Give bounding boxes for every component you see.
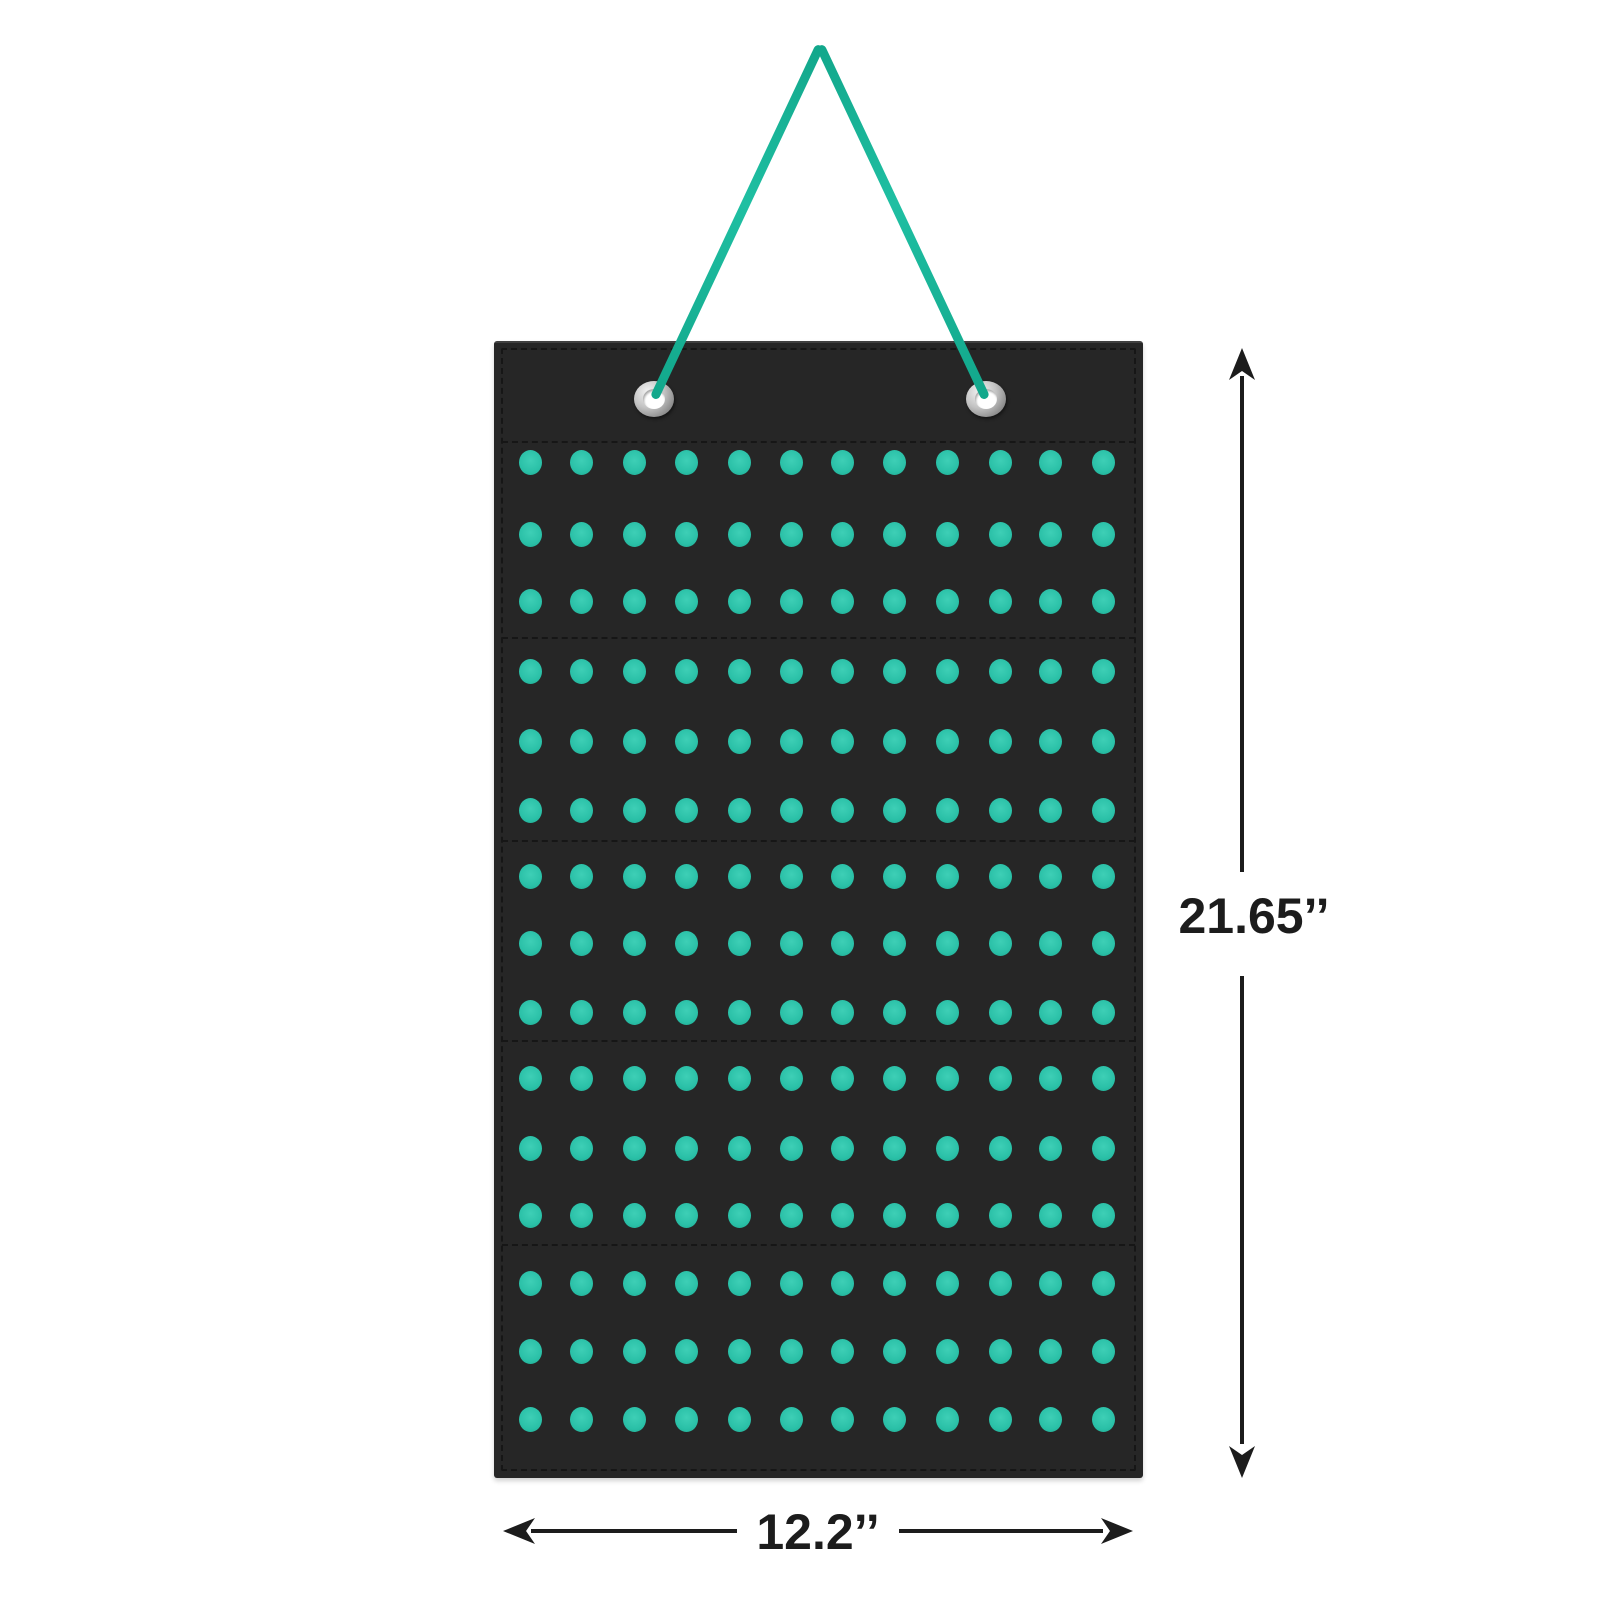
height-arrow-down-icon (1229, 1446, 1255, 1478)
pocket-dot (675, 1136, 698, 1161)
pocket-dot (1039, 1066, 1062, 1091)
pocket-dot (675, 1066, 698, 1091)
pocket-dot (1092, 589, 1115, 614)
pocket-dot (989, 522, 1012, 547)
pocket-dot (989, 1271, 1012, 1296)
pocket-dot (883, 1066, 906, 1091)
pocket-dot (883, 931, 906, 956)
pocket-dot (883, 659, 906, 684)
pocket-dot (623, 1136, 646, 1161)
product-dimension-diagram: 21.65’’ 12.2’’ (0, 0, 1600, 1600)
pocket-dot (675, 1407, 698, 1432)
pocket-dot (1092, 1271, 1115, 1296)
pocket-dot (570, 798, 593, 823)
pocket-dot (1039, 729, 1062, 754)
pocket-dot (831, 798, 854, 823)
pocket-dot (519, 589, 542, 614)
pocket-dot (780, 931, 803, 956)
pocket-dot (883, 1136, 906, 1161)
pocket-dot (936, 1271, 959, 1296)
pocket-dot (989, 450, 1012, 475)
pocket-dot (883, 798, 906, 823)
pocket-dot (570, 1407, 593, 1432)
pocket-dot (1092, 729, 1115, 754)
height-dimension-line-bottom (1240, 976, 1244, 1444)
pocket-dot (989, 1339, 1012, 1364)
pocket-dot (570, 729, 593, 754)
pocket-dot (989, 1000, 1012, 1025)
pocket-dot (780, 1000, 803, 1025)
pocket-dot (936, 864, 959, 889)
pocket-dot (1039, 931, 1062, 956)
pocket-dot (675, 450, 698, 475)
pocket-dot (519, 1407, 542, 1432)
width-dimension-line-right (899, 1529, 1103, 1533)
width-label: 12.2’’ (756, 1503, 879, 1561)
pocket-dot (728, 1066, 751, 1091)
pocket-dot (780, 798, 803, 823)
pocket-dot (570, 589, 593, 614)
pocket-dot (728, 522, 751, 547)
pocket-dot (780, 589, 803, 614)
pocket-dot (728, 1136, 751, 1161)
pocket-dot (831, 659, 854, 684)
pocket-dot (936, 1339, 959, 1364)
pocket-dot (675, 1339, 698, 1364)
pocket-dot (1039, 1136, 1062, 1161)
pocket-dot (675, 798, 698, 823)
pocket-dot (1039, 1407, 1062, 1432)
pocket-dot (1039, 589, 1062, 614)
pocket-dot (936, 1000, 959, 1025)
pocket-dot (570, 1066, 593, 1091)
pocket-dot (675, 864, 698, 889)
pocket-dot (989, 864, 1012, 889)
pocket-dot (883, 589, 906, 614)
pocket-dot (1092, 1407, 1115, 1432)
pocket-dot (675, 1271, 698, 1296)
pocket-dot (570, 1203, 593, 1228)
pocket-dot (623, 522, 646, 547)
pocket-dot (728, 1271, 751, 1296)
pocket-dot (728, 659, 751, 684)
pocket-dot (780, 522, 803, 547)
pocket-dot (1092, 1203, 1115, 1228)
pocket-dot (623, 1339, 646, 1364)
pocket-dot (1039, 450, 1062, 475)
pocket-dot (831, 450, 854, 475)
pocket-dot (728, 450, 751, 475)
pocket-dot (936, 729, 959, 754)
pocket-dot (1092, 1000, 1115, 1025)
pocket-dot (1039, 1000, 1062, 1025)
pocket-dot (989, 659, 1012, 684)
pocket-dot (570, 522, 593, 547)
pocket-seam (502, 441, 1135, 443)
pocket-dot (883, 864, 906, 889)
pocket-dot (1092, 798, 1115, 823)
pocket-dot (570, 931, 593, 956)
pocket-dot (570, 864, 593, 889)
pocket-dot (1092, 522, 1115, 547)
pocket-dot (623, 1203, 646, 1228)
pocket-seam (502, 637, 1135, 639)
pocket-dot (831, 1000, 854, 1025)
pocket-dot (728, 1203, 751, 1228)
pocket-dot (623, 1066, 646, 1091)
pocket-dot (989, 1136, 1012, 1161)
pocket-dot (623, 1407, 646, 1432)
pocket-dot (780, 1136, 803, 1161)
width-arrow-right-icon (1101, 1518, 1133, 1544)
pocket-dot (780, 1066, 803, 1091)
pocket-seam (502, 1244, 1135, 1246)
pocket-dot (831, 522, 854, 547)
pocket-dot (936, 659, 959, 684)
pocket-dot (831, 1203, 854, 1228)
pocket-dot (936, 798, 959, 823)
pocket-dot (831, 729, 854, 754)
pocket-dot (675, 659, 698, 684)
pocket-dot (675, 729, 698, 754)
pocket-dot (780, 729, 803, 754)
pocket-dot (883, 1271, 906, 1296)
pocket-dot (570, 1000, 593, 1025)
pocket-dot (570, 1339, 593, 1364)
pocket-dot (989, 931, 1012, 956)
pocket-dot (936, 1203, 959, 1228)
pocket-dot (989, 589, 1012, 614)
pocket-dot (570, 659, 593, 684)
height-label: 21.65’’ (1178, 887, 1329, 945)
pocket-dot (519, 931, 542, 956)
pocket-dot (989, 1066, 1012, 1091)
pocket-dot (519, 1000, 542, 1025)
pocket-dot (780, 1407, 803, 1432)
pocket-dot (831, 1066, 854, 1091)
pocket-dot (675, 589, 698, 614)
pocket-dot (989, 729, 1012, 754)
pocket-dot (1039, 1339, 1062, 1364)
pocket-dot (519, 729, 542, 754)
pocket-dot (883, 522, 906, 547)
pocket-dot (1092, 1339, 1115, 1364)
pocket-dot (831, 1136, 854, 1161)
pocket-dot (831, 931, 854, 956)
pocket-dot (519, 1339, 542, 1364)
stitch-border (501, 348, 1136, 1471)
pocket-dot (1039, 522, 1062, 547)
pocket-dot (1092, 1066, 1115, 1091)
pocket-dot (831, 589, 854, 614)
pocket-dot (728, 1339, 751, 1364)
pocket-dot (1039, 659, 1062, 684)
pocket-dot (519, 1136, 542, 1161)
pocket-dot (1039, 1203, 1062, 1228)
pocket-seam (502, 1040, 1135, 1042)
pocket-dot (623, 450, 646, 475)
pocket-dot (989, 1203, 1012, 1228)
pocket-dot (780, 659, 803, 684)
pocket-dot (519, 1271, 542, 1296)
pocket-dot (519, 1066, 542, 1091)
height-dimension-line-top (1240, 376, 1244, 872)
pocket-dot (519, 1203, 542, 1228)
pocket-dot (623, 1271, 646, 1296)
pocket-dot (623, 864, 646, 889)
pocket-dot (570, 1136, 593, 1161)
pocket-dot (1092, 931, 1115, 956)
pocket-dot (883, 450, 906, 475)
pocket-dot (780, 1271, 803, 1296)
pocket-dot (883, 1339, 906, 1364)
pocket-dot (883, 729, 906, 754)
pocket-dot (936, 1066, 959, 1091)
pocket-dot (780, 1203, 803, 1228)
pocket-dot (675, 522, 698, 547)
pocket-dot (883, 1203, 906, 1228)
pocket-dot (1039, 1271, 1062, 1296)
pocket-dot (1092, 450, 1115, 475)
pocket-dot (728, 798, 751, 823)
pocket-dot (883, 1000, 906, 1025)
pocket-dot (831, 1407, 854, 1432)
pocket-dot (675, 931, 698, 956)
pocket-dot (831, 1339, 854, 1364)
pocket-dot (936, 1136, 959, 1161)
pocket-dot (1092, 864, 1115, 889)
pocket-dot (780, 450, 803, 475)
pocket-dot (728, 1000, 751, 1025)
pocket-seam (502, 840, 1135, 842)
pocket-dot (519, 659, 542, 684)
pocket-dot (728, 729, 751, 754)
pocket-dot (519, 450, 542, 475)
pocket-dot (831, 1271, 854, 1296)
width-dimension-line-left (531, 1529, 737, 1533)
pocket-dot (623, 729, 646, 754)
pocket-dot (623, 1000, 646, 1025)
right-grommet (966, 381, 1006, 417)
pocket-dot (936, 589, 959, 614)
pocket-dot (570, 1271, 593, 1296)
pocket-dot (780, 1339, 803, 1364)
pocket-dot (936, 931, 959, 956)
pocket-dot (1039, 864, 1062, 889)
organizer-panel (494, 341, 1143, 1478)
pocket-dot (623, 589, 646, 614)
pocket-dot (989, 1407, 1012, 1432)
pocket-dot (570, 450, 593, 475)
pocket-dot (623, 798, 646, 823)
pocket-dot (675, 1000, 698, 1025)
pocket-dot (1092, 659, 1115, 684)
pocket-dot (728, 1407, 751, 1432)
pocket-dot (675, 1203, 698, 1228)
pocket-dot (728, 864, 751, 889)
pocket-dot (936, 1407, 959, 1432)
pocket-dot (623, 659, 646, 684)
pocket-dot (883, 1407, 906, 1432)
pocket-dot (519, 522, 542, 547)
panel-top-highlight (494, 341, 1143, 343)
pocket-dot (1092, 1136, 1115, 1161)
pocket-dot (623, 931, 646, 956)
pocket-dot (1039, 798, 1062, 823)
pocket-dot (728, 931, 751, 956)
pocket-dot (519, 864, 542, 889)
pocket-dot (780, 864, 803, 889)
pocket-dot (989, 798, 1012, 823)
pocket-dot (936, 450, 959, 475)
pocket-dot (519, 798, 542, 823)
pocket-dot (831, 864, 854, 889)
pocket-dot (936, 522, 959, 547)
pocket-dot (728, 589, 751, 614)
